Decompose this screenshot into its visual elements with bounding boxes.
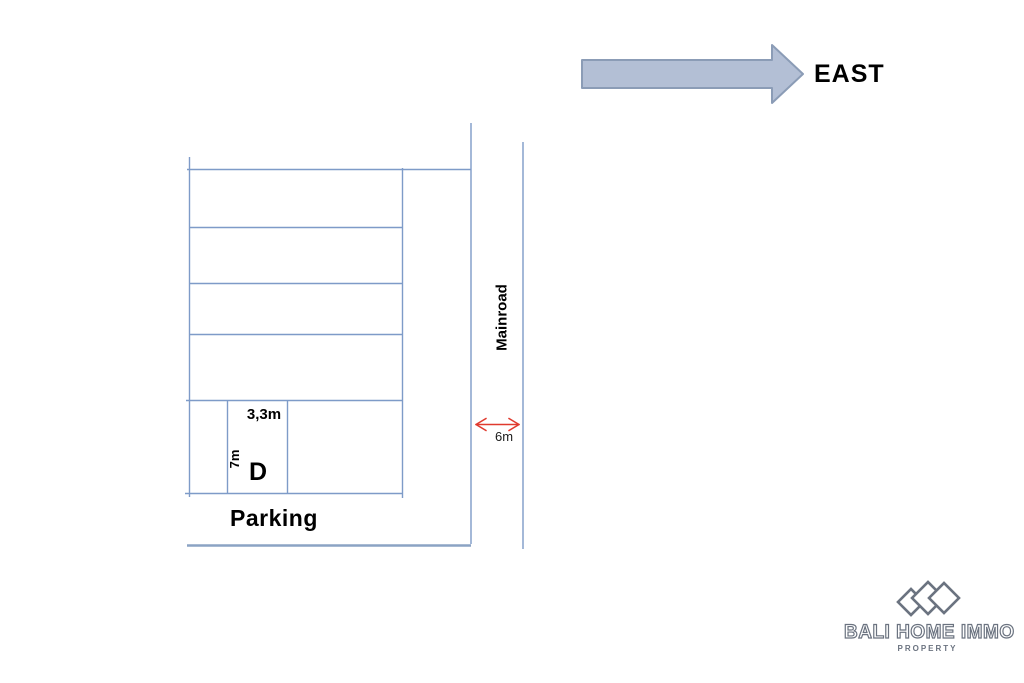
- parking-label: Parking: [230, 505, 318, 532]
- site-plan-page: EAST Mainroad 6m 3,3m 7m D Parking BALI …: [0, 0, 1024, 683]
- logo-diamonds-icon: [898, 582, 959, 615]
- logo-subtitle: PROPERTY: [845, 644, 1010, 653]
- plan-canvas: [0, 0, 1024, 683]
- plot-width-label: 3,3m: [238, 406, 290, 423]
- plot-letter-label: D: [227, 458, 289, 487]
- east-arrow-icon: [582, 45, 803, 103]
- east-label: EAST: [814, 60, 885, 89]
- logo-title: BALI HOME IMMO: [844, 622, 1010, 644]
- road-width-label: 6m: [488, 429, 520, 444]
- mainroad-label: Mainroad: [494, 283, 511, 353]
